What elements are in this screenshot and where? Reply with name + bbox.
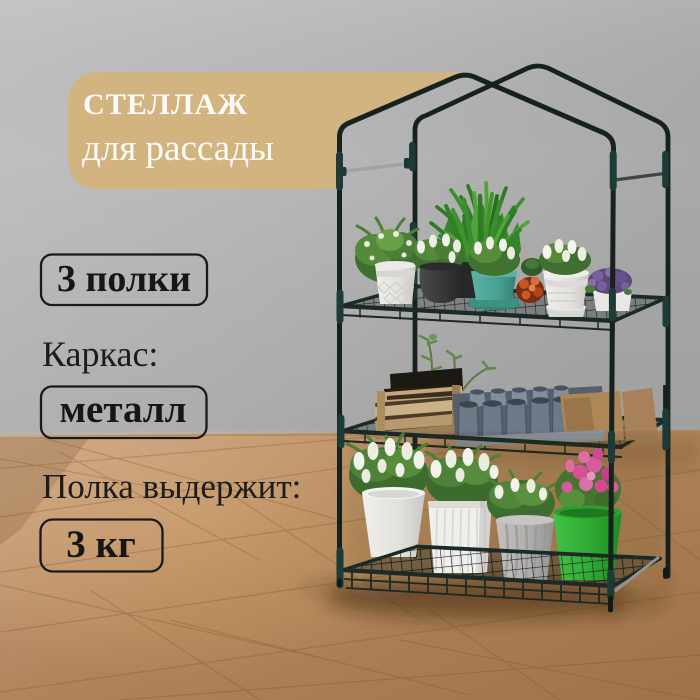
- svg-text:Каркас:: Каркас:: [42, 334, 158, 374]
- svg-text:3 полки: 3 полки: [57, 258, 191, 300]
- svg-text:Полка выдержит:: Полка выдержит:: [42, 467, 301, 506]
- svg-text:СТЕЛЛАЖ: СТЕЛЛАЖ: [83, 88, 248, 121]
- svg-text:для рассады: для рассады: [82, 128, 274, 169]
- svg-text:металл: металл: [59, 388, 186, 431]
- svg-text:3 кг: 3 кг: [66, 523, 135, 566]
